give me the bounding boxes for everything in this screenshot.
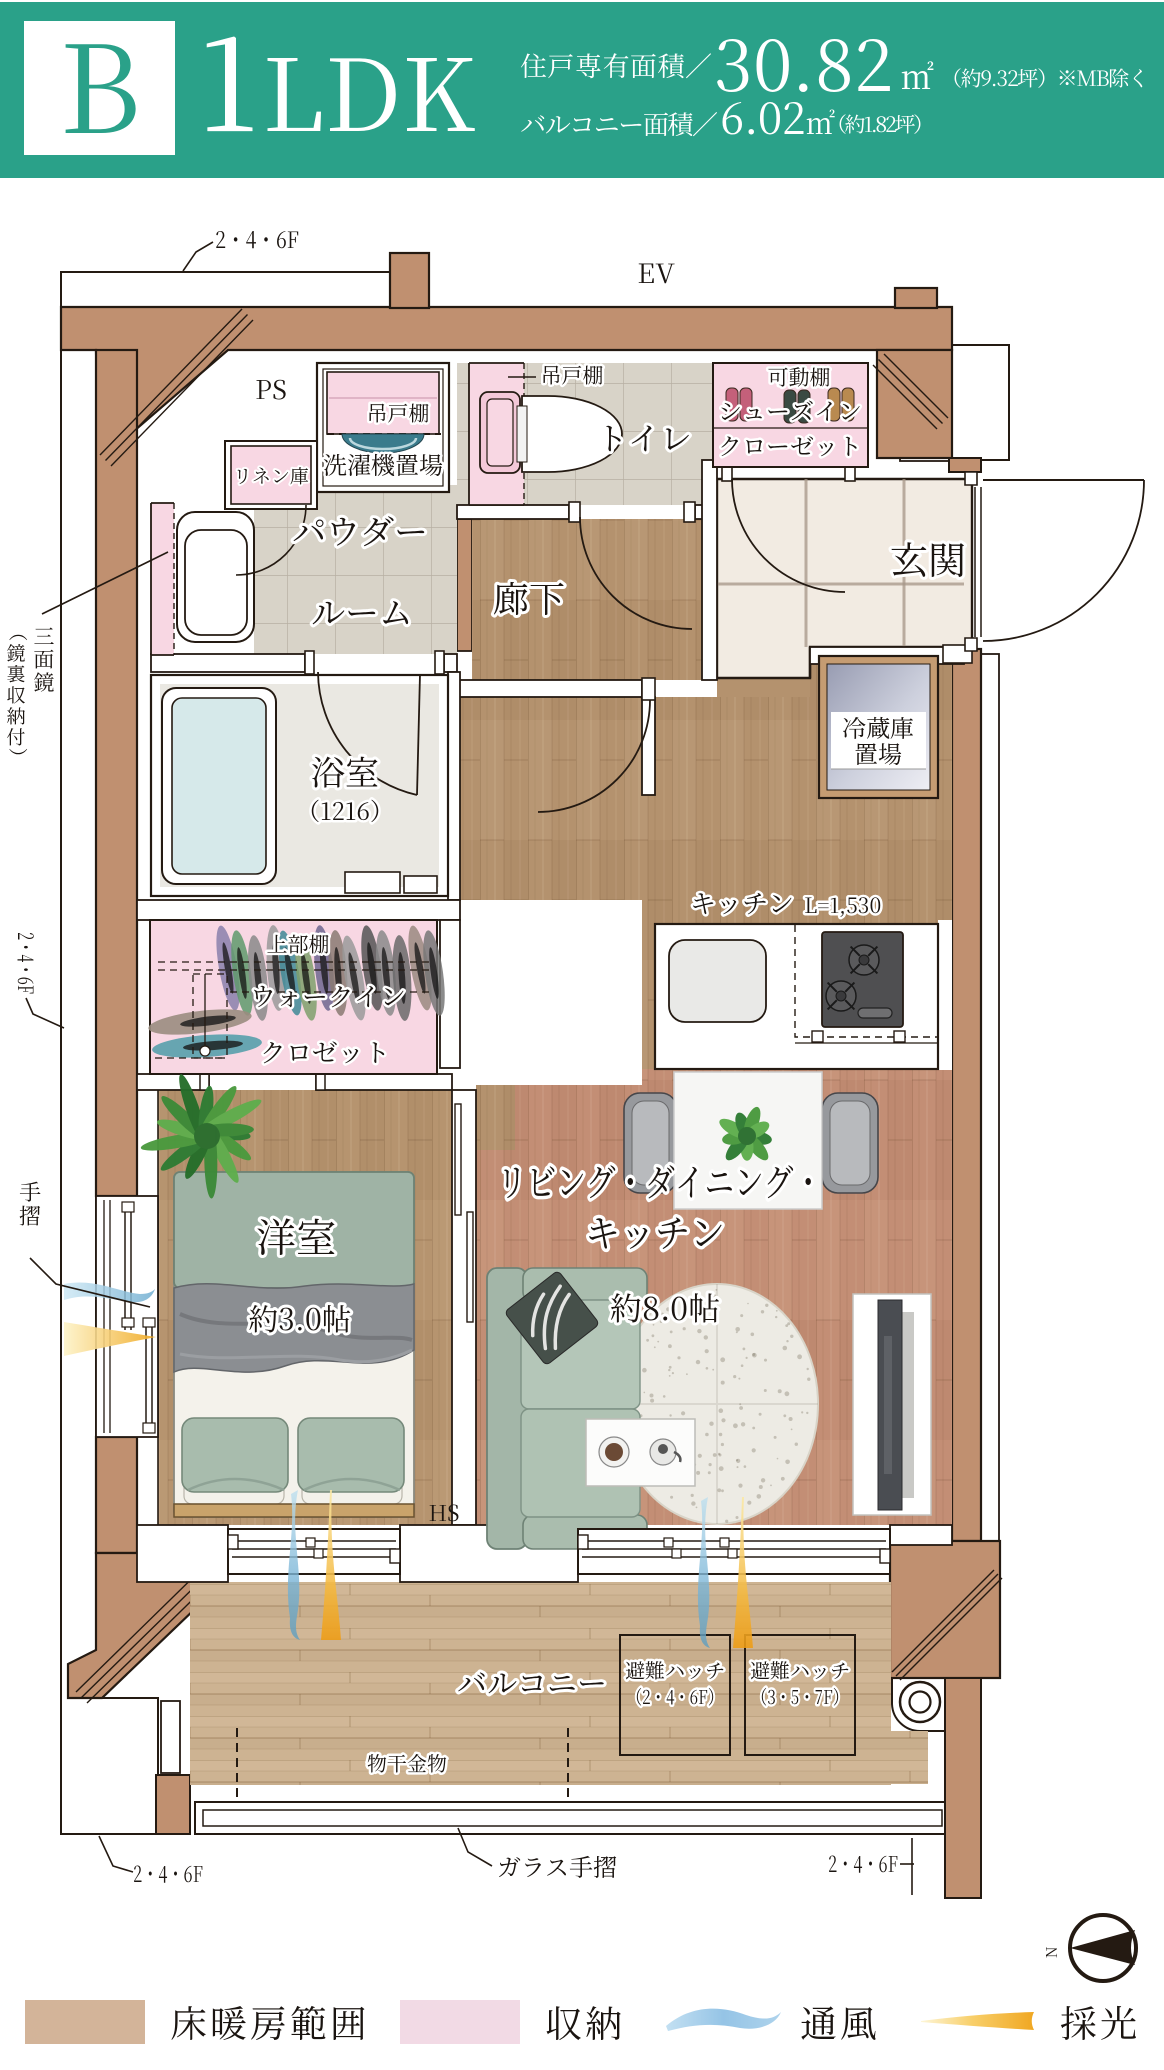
svg-text:約3.0帖: 約3.0帖 xyxy=(248,1295,351,1339)
svg-text:ガラス手摺: ガラス手摺 xyxy=(497,1848,617,1883)
svg-text:置場: 置場 xyxy=(854,735,902,770)
svg-text:床暖房範囲: 床暖房範囲 xyxy=(170,1994,370,2048)
svg-text:収納: 収納 xyxy=(545,1994,625,2048)
svg-text:上部棚: 上部棚 xyxy=(267,929,330,959)
svg-text:ウォークイン: ウォークイン xyxy=(250,977,406,1014)
svg-text:N: N xyxy=(1041,1946,1062,1958)
svg-text:（2・4・6F）: （2・4・6F） xyxy=(627,1683,723,1710)
svg-text:EV: EV xyxy=(638,252,676,291)
svg-text:住戸専有面積／: 住戸専有面積／ xyxy=(520,45,712,84)
svg-text:（3・5・7F）: （3・5・7F） xyxy=(752,1683,848,1710)
svg-text:物干金物: 物干金物 xyxy=(367,1748,447,1777)
svg-text:約8.0帖: 約8.0帖 xyxy=(610,1284,720,1330)
svg-text:廊下: 廊下 xyxy=(493,572,565,623)
svg-text:付: 付 xyxy=(6,723,25,750)
svg-text:B: B xyxy=(59,0,141,168)
svg-text:1LDK: 1LDK xyxy=(198,0,476,168)
svg-text:（約9.32坪）※MB除く: （約9.32坪）※MB除く xyxy=(941,63,1149,93)
svg-text:パウダー: パウダー xyxy=(292,505,428,554)
svg-text:キッチン: キッチン xyxy=(585,1203,725,1258)
svg-text:バルコニー面積／: バルコニー面積／ xyxy=(520,105,718,142)
svg-text:避難ハッチ: 避難ハッチ xyxy=(750,1655,850,1684)
svg-text:2・4・6F: 2・4・6F xyxy=(828,1848,898,1879)
svg-text:（1216）: （1216） xyxy=(296,792,393,827)
svg-text:浴室: 浴室 xyxy=(311,746,379,795)
svg-text:玄関: 玄関 xyxy=(890,530,966,585)
svg-text:吊戸棚: 吊戸棚 xyxy=(367,398,430,428)
svg-text:通風: 通風 xyxy=(800,1994,880,2048)
svg-text:摺: 摺 xyxy=(19,1200,41,1231)
svg-text:トイレ: トイレ xyxy=(596,414,692,460)
svg-text:ルーム: ルーム xyxy=(311,586,413,635)
svg-text:避難ハッチ: 避難ハッチ xyxy=(625,1655,725,1684)
svg-text:リネン庫: リネン庫 xyxy=(233,462,309,489)
svg-text:クロゼット: クロゼット xyxy=(260,1033,390,1070)
svg-text:クローゼット: クローゼット xyxy=(718,427,862,462)
svg-text:2・4・6F: 2・4・6F xyxy=(133,1858,203,1889)
svg-text:HS: HS xyxy=(428,1497,459,1528)
svg-text:洗濯機置場: 洗濯機置場 xyxy=(323,446,443,481)
svg-text:）: ） xyxy=(5,747,32,766)
svg-text:（約1.82坪）: （約1.82坪） xyxy=(826,109,934,139)
svg-text:リビング・ダイニング・: リビング・ダイニング・ xyxy=(497,1152,823,1207)
svg-text:鏡: 鏡 xyxy=(34,667,55,697)
svg-text:採光: 採光 xyxy=(1060,1994,1140,2048)
svg-text:2・4・6F: 2・4・6F xyxy=(11,932,41,994)
svg-text:吊戸棚: 吊戸棚 xyxy=(541,360,604,390)
svg-text:バルコニー: バルコニー xyxy=(457,1659,607,1703)
svg-text:キッチンL=1,530: キッチンL=1,530 xyxy=(690,884,881,921)
svg-text:㎡: ㎡ xyxy=(901,52,934,99)
svg-text:2・4・6F: 2・4・6F xyxy=(215,222,299,255)
svg-text:洋室: 洋室 xyxy=(256,1207,336,1264)
svg-text:シューズイン: シューズイン xyxy=(718,392,862,427)
svg-text:PS: PS xyxy=(255,370,286,407)
svg-text:可動棚: 可動棚 xyxy=(768,362,831,392)
